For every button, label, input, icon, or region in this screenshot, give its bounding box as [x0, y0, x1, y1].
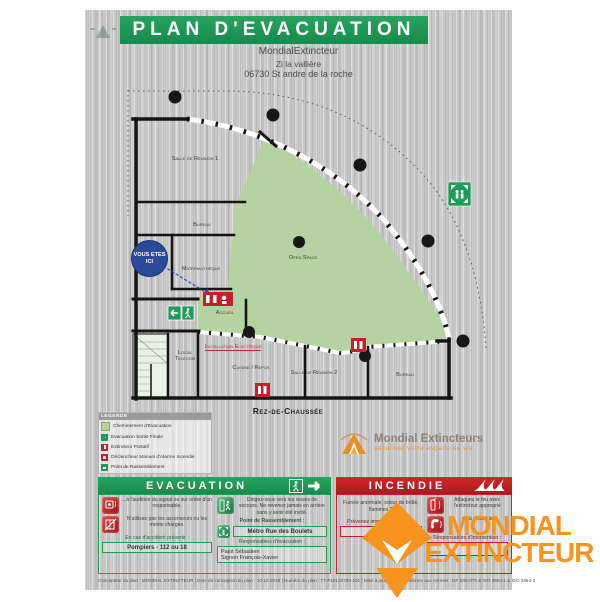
no-elevator-icon: [102, 516, 119, 533]
legend-item: Déclencheur Manuel d'Alarme Incendie: [99, 453, 211, 463]
evacuation-title: EVACUATION: [104, 480, 289, 492]
title-banner: PLAN D'EVACUATION: [120, 16, 428, 44]
brand-name: Mondial Extincteurs: [374, 434, 483, 446]
brand-flame-icon: [338, 428, 370, 458]
accident-label: En cas d'accident prévenir :: [102, 535, 212, 541]
evacuation-panel: EVACUATION ...à l'audition du signal ou …: [98, 477, 331, 576]
alarm-button-icon: [102, 497, 119, 514]
assembly-value-box: Métro Rue des Boulets: [233, 526, 327, 537]
legend-title: LEGENDE: [99, 413, 211, 420]
legend: LEGENDE Cheminement d'Evacuation → Evacu…: [98, 412, 212, 474]
page-title: PLAN D'EVACUATION: [132, 19, 415, 41]
room-label-installation-electrique: Installation Electrique: [205, 344, 261, 351]
legend-item: Point de Rassemblement: [99, 463, 211, 473]
room-label-salle-reunion-2: Salle de Réunion 2: [291, 370, 337, 376]
room-label-bureau-2: Bureau: [396, 372, 414, 378]
legend-item: Extincteur Portatif: [99, 442, 211, 452]
room-label-open-space: Open Space: [289, 255, 317, 261]
final-exit-icon: →: [101, 434, 108, 441]
address-line2: 06730 St andre de la roche: [85, 69, 512, 80]
extinguisher-icon-open-space: [351, 338, 366, 352]
faint-brand-logo: [88, 20, 118, 44]
room-label-local-telecom: Local Telecom: [173, 350, 197, 362]
evacuation-path-swatch: [101, 422, 110, 431]
brand-tagline: sécuriser votre espace de vie: [374, 445, 483, 452]
manual-alarm-icon: [101, 454, 108, 461]
room-label-materiautheque: Matériauthèque: [182, 266, 220, 272]
responsables-evac-box: Pajot Sébastien Signon François-Xavier: [217, 546, 327, 563]
address-block: MondialExtincteur Zi la vallière 06730 S…: [85, 46, 512, 80]
address-line1: Zi la vallière: [85, 59, 512, 70]
evacuation-instruction-exits: Dirigez-vous vers les issues de secours.…: [217, 497, 327, 516]
exit-man-icon: [289, 479, 303, 493]
incendie-title: INCENDIE: [342, 480, 472, 492]
legend-item: → Evacuation Sortie Finale: [99, 432, 211, 442]
accident-value-box: Pompiers - 112 ou 18: [102, 542, 212, 553]
assembly-point-icon-plan: [448, 182, 471, 206]
brand-logo: Mondial Extincteurs sécuriser votre espa…: [338, 428, 483, 458]
legend-item: Cheminement d'Evacuation: [99, 420, 211, 432]
incendie-header: INCENDIE: [336, 477, 512, 494]
arrow-right-icon: [307, 480, 325, 492]
exit-door-icon: [217, 497, 234, 514]
assembly-label: Point de Rassemblement :: [217, 518, 327, 524]
watermark-text: MONDIAL EXTINCTEUR: [420, 512, 598, 567]
final-exit-icon: [168, 306, 194, 320]
screenshot-root: { "poster": { "title": "PLAN D'EVACUATIO…: [0, 0, 600, 600]
assembly-point-icon: [101, 464, 108, 471]
room-label-salle-reunion-1: Salle de Réunion 1: [172, 156, 218, 162]
room-label-cuisine-repos: Cuisine / Repos: [232, 365, 269, 371]
responsables-evac-label: Responsables d'évacuation :: [217, 539, 327, 545]
evacuation-instruction-elevator: N'utilisez pas les ascenseurs ou les mon…: [102, 516, 212, 533]
mondial-extincteur-watermark: MONDIAL EXTINCTEUR: [350, 498, 600, 600]
room-label-bureau-1: Bureau: [193, 222, 211, 228]
flames-icon: [472, 479, 506, 492]
floor-label: Rez-de-Chaussée: [228, 406, 348, 416]
company-name: MondialExtincteur: [85, 46, 512, 59]
extinguisher-alarm-icons-accueil: [203, 292, 233, 306]
extinguisher-icon: [101, 444, 108, 451]
room-label-accueil: Accueil: [216, 310, 234, 316]
evacuation-body: ...à l'audition du signal ou sur ordre d…: [98, 494, 331, 574]
staircase: [133, 334, 168, 398]
evacuation-instruction-signal: ...à l'audition du signal ou sur ordre d…: [102, 497, 212, 514]
extinguisher-icon-cuisine: [255, 383, 270, 397]
evacuation-header: EVACUATION: [98, 477, 331, 494]
you-are-here-badge: VOUS ETES ICI: [131, 240, 168, 277]
assembly-point-icon-small: [217, 525, 230, 538]
